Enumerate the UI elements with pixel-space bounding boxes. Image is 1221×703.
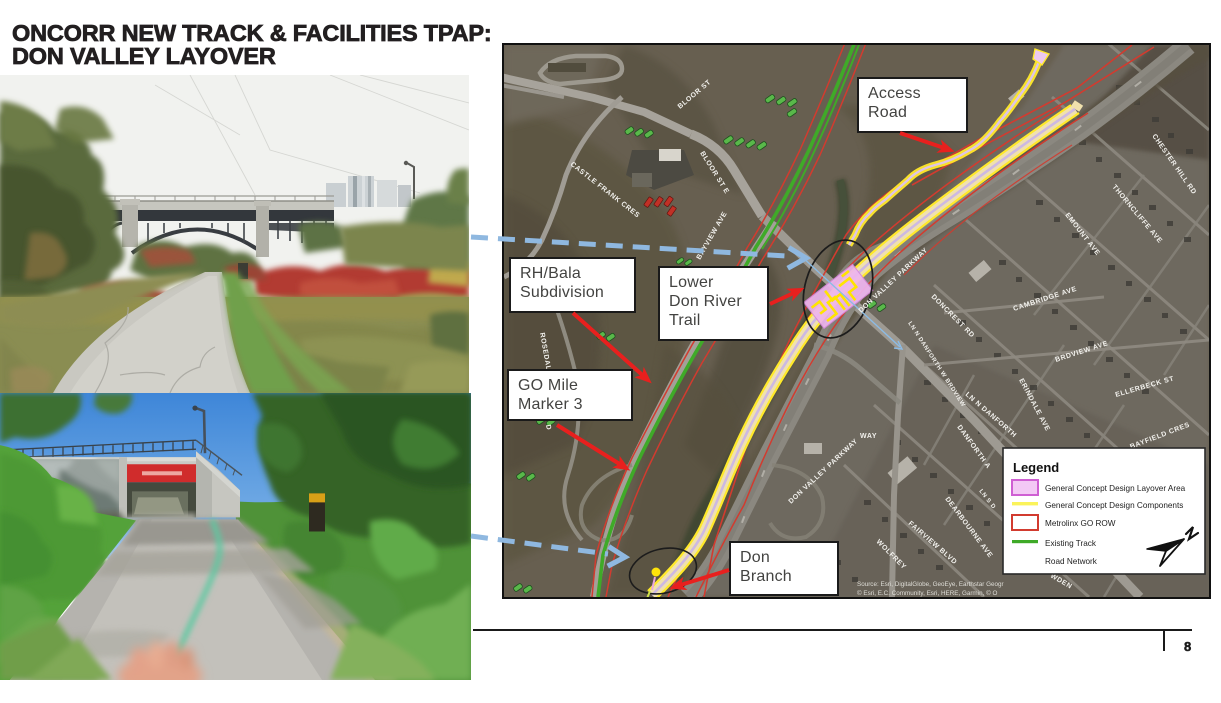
svg-text:Metrolinx GO ROW: Metrolinx GO ROW <box>1045 519 1116 528</box>
svg-text:General Concept Design Layover: General Concept Design Layover Area <box>1045 484 1186 493</box>
svg-text:Legend: Legend <box>1013 460 1059 475</box>
svg-text:Source: Esri, DigitalGlobe, Ge: Source: Esri, DigitalGlobe, GeoEye, Eart… <box>857 581 1004 588</box>
svg-text:© Esri, E.C. Community, Esri,: © Esri, E.C. Community, Esri, HERE, Garm… <box>857 589 997 597</box>
svg-text:WAY: WAY <box>860 433 877 440</box>
svg-text:General Concept Design Compone: General Concept Design Components <box>1045 501 1183 510</box>
svg-text:D: D <box>544 424 552 431</box>
svg-text:Existing Track: Existing Track <box>1045 539 1097 548</box>
svg-text:Road Network: Road Network <box>1045 557 1098 566</box>
